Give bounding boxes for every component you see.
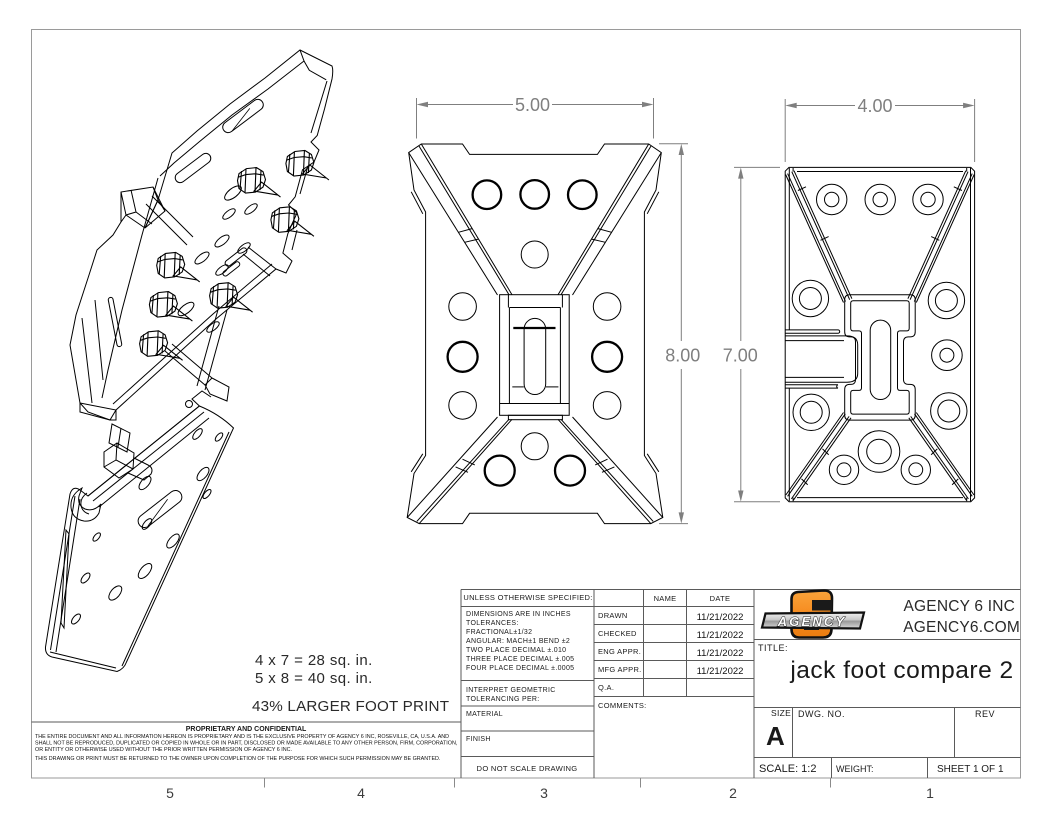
svg-text:ENG APPR.: ENG APPR.	[598, 647, 641, 656]
svg-text:Q.A.: Q.A.	[598, 683, 614, 692]
svg-text:SHEET 1 OF 1: SHEET 1 OF 1	[937, 764, 1004, 775]
svg-text:43% LARGER FOOT PRINT: 43% LARGER FOOT PRINT	[252, 698, 449, 715]
svg-text:SCALE: 1:2: SCALE: 1:2	[759, 763, 816, 775]
svg-text:SIZE: SIZE	[771, 708, 791, 718]
svg-text:11/21/2022: 11/21/2022	[697, 648, 744, 659]
svg-text:PROPRIETARY AND CONFIDENTIAL: PROPRIETARY AND CONFIDENTIAL	[186, 726, 307, 733]
svg-text:11/21/2022: 11/21/2022	[697, 630, 744, 641]
svg-text:ANGULAR: MACH±1 BEND ±2: ANGULAR: MACH±1 BEND ±2	[466, 638, 570, 645]
svg-text:DRAWN: DRAWN	[598, 611, 628, 620]
svg-text:REV: REV	[975, 709, 995, 719]
svg-text:AGENCY6.COM: AGENCY6.COM	[903, 619, 1020, 636]
svg-text:FINISH: FINISH	[466, 736, 491, 743]
svg-text:THIS DRAWING OR PRINT MUST BE: THIS DRAWING OR PRINT MUST BE RETURNED T…	[35, 756, 440, 762]
svg-text:4: 4	[357, 785, 365, 801]
svg-text:THE ENTIRE DOCUMENT AND ALL IN: THE ENTIRE DOCUMENT AND ALL INFORMATION …	[35, 734, 449, 740]
svg-text:DIMENSIONS ARE IN INCHES: DIMENSIONS ARE IN INCHES	[466, 611, 571, 618]
svg-text:1: 1	[926, 785, 934, 801]
svg-text:jack foot compare 2: jack foot compare 2	[789, 657, 1013, 684]
svg-text:FOUR PLACE DECIMAL ±.0005: FOUR PLACE DECIMAL ±.0005	[466, 665, 574, 672]
svg-text:5: 5	[166, 785, 174, 801]
svg-text:TOLERANCING PER:: TOLERANCING PER:	[466, 696, 540, 703]
svg-text:MATERIAL: MATERIAL	[466, 711, 503, 718]
svg-text:UNLESS OTHERWISE SPECIFIED:: UNLESS OTHERWISE SPECIFIED:	[463, 593, 592, 602]
svg-text:AGENCY 6 INC: AGENCY 6 INC	[903, 598, 1015, 615]
svg-text:5 x 8 = 40 sq. in.: 5 x 8 = 40 sq. in.	[255, 670, 373, 687]
svg-text:CHECKED: CHECKED	[598, 629, 637, 638]
svg-text:FRACTIONAL±1/32: FRACTIONAL±1/32	[466, 629, 532, 636]
svg-text:COMMENTS:: COMMENTS:	[598, 701, 647, 710]
svg-text:NAME: NAME	[654, 594, 677, 603]
svg-text:TOLERANCES:: TOLERANCES:	[466, 620, 519, 627]
svg-text:TITLE:: TITLE:	[758, 643, 788, 653]
svg-text:INTERPRET GEOMETRIC: INTERPRET GEOMETRIC	[466, 687, 556, 694]
svg-text:11/21/2022: 11/21/2022	[697, 666, 744, 677]
svg-text:WEIGHT:: WEIGHT:	[836, 764, 874, 774]
svg-text:SHALL NOT BE REPRODUCED, DUPLI: SHALL NOT BE REPRODUCED, DUPLICATED OR C…	[35, 741, 458, 747]
svg-text:5.00: 5.00	[515, 95, 550, 115]
svg-text:2: 2	[729, 785, 737, 801]
svg-text:TWO PLACE DECIMAL ±.010: TWO PLACE DECIMAL ±.010	[466, 647, 566, 654]
svg-text:8.00: 8.00	[665, 346, 700, 366]
svg-text:A: A	[766, 721, 785, 751]
svg-text:AGENCY: AGENCY	[777, 614, 847, 629]
svg-text:3: 3	[540, 785, 548, 801]
svg-text:OR ENTITY OR OTHERWISE USED WI: OR ENTITY OR OTHERWISE USED WITHOUT THE …	[35, 747, 292, 753]
svg-text:DO NOT SCALE DRAWING: DO NOT SCALE DRAWING	[477, 764, 578, 773]
svg-text:THREE PLACE DECIMAL ±.005: THREE PLACE DECIMAL ±.005	[466, 656, 574, 663]
svg-text:4.00: 4.00	[857, 96, 892, 116]
svg-text:DWG. NO.: DWG. NO.	[798, 709, 845, 719]
svg-text:DATE: DATE	[710, 594, 731, 603]
svg-text:11/21/2022: 11/21/2022	[697, 612, 744, 623]
svg-text:MFG APPR.: MFG APPR.	[598, 665, 642, 674]
svg-text:4 x 7 = 28 sq. in.: 4 x 7 = 28 sq. in.	[255, 652, 373, 669]
svg-text:7.00: 7.00	[723, 346, 758, 366]
